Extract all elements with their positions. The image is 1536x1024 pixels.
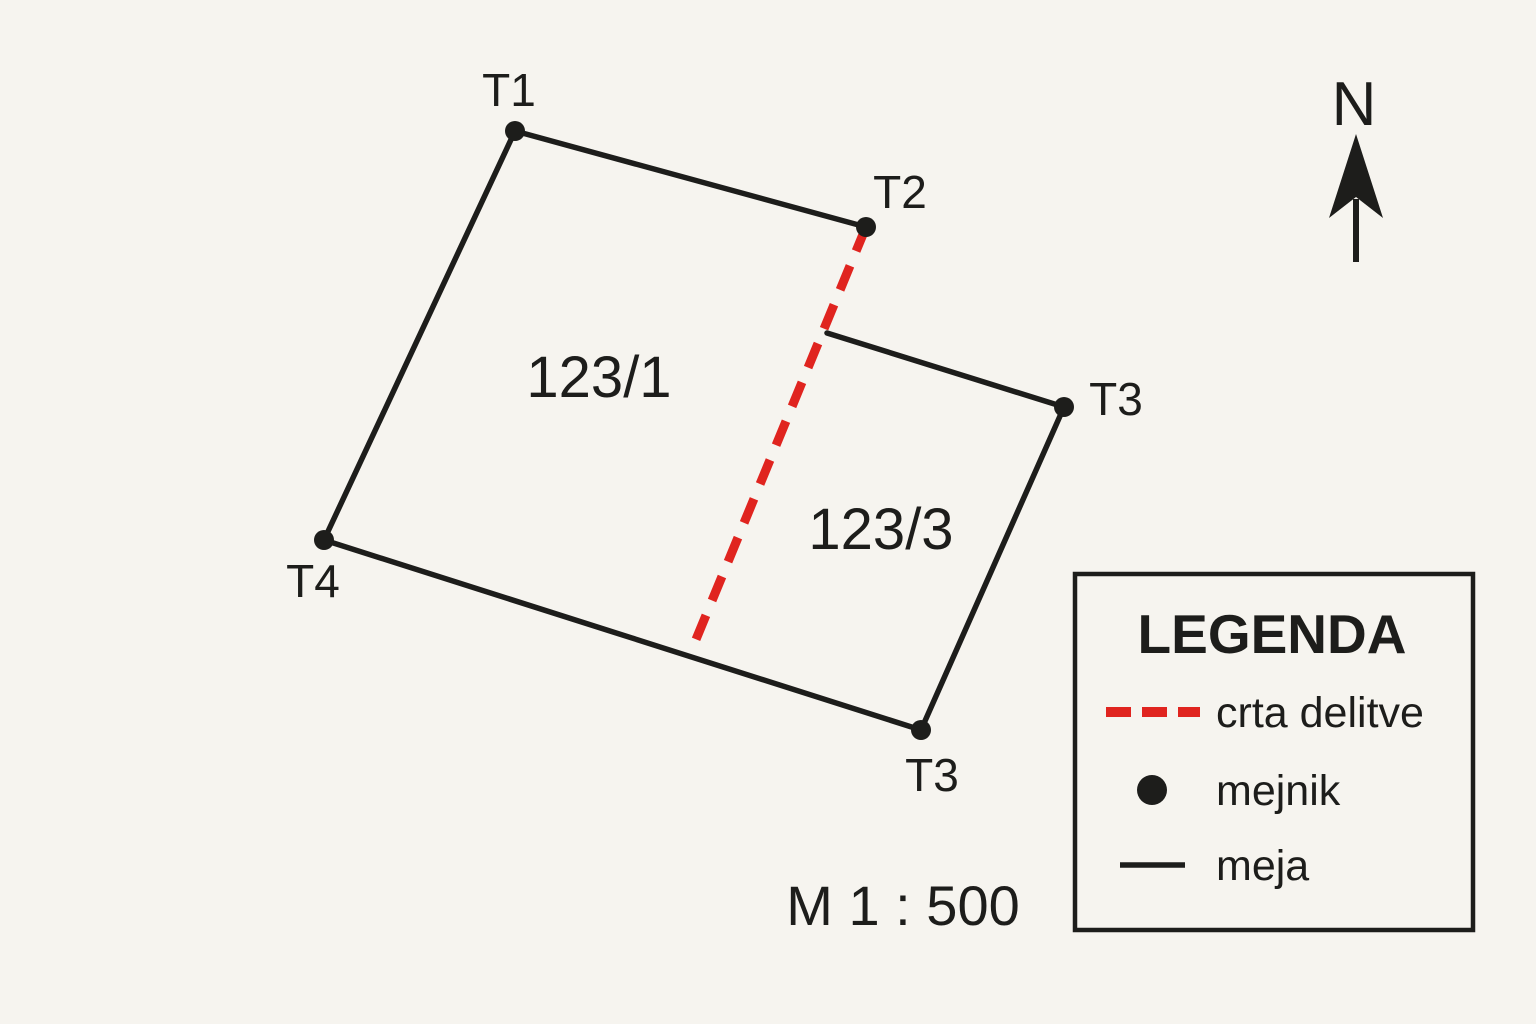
parcel-label-123-1: 123/1 [526, 345, 671, 410]
sketch-canvas: T1 T2 T3 T3 T4 123/1 123/3 N M 1 : 500 L… [0, 0, 1536, 1024]
parcel-division-sketch: T1 T2 T3 T3 T4 123/1 123/3 N M 1 : 500 L… [0, 0, 1536, 1024]
point-label-t1: T1 [482, 64, 536, 116]
parcel-boundaries [324, 131, 1064, 730]
legend-item-meja: meja [1216, 842, 1309, 890]
marker-dot-t1 [505, 121, 525, 141]
point-label-t3-right: T3 [1089, 373, 1143, 425]
legend-dot-icon [1137, 775, 1167, 805]
point-labels: T1 T2 T3 T3 T4 [286, 64, 1143, 801]
point-label-t3-bottom: T3 [905, 749, 959, 801]
boundary-t1-t2 [515, 131, 866, 227]
boundary-t4-t3b [324, 540, 921, 730]
marker-dot-t4 [314, 530, 334, 550]
scale-label: M 1 : 500 [786, 874, 1019, 937]
north-arrow: N [1329, 70, 1383, 262]
legend-title: LEGENDA [1138, 603, 1407, 665]
marker-dot-t3-right [1054, 397, 1074, 417]
point-label-t2: T2 [873, 166, 927, 218]
boundary-t1-t4 [324, 131, 515, 540]
division-line [690, 227, 866, 654]
legend: LEGENDA crta delitve mejnik meja [1075, 574, 1473, 930]
parcel-labels: 123/1 123/3 [526, 345, 953, 562]
legend-item-mejnik: mejnik [1216, 767, 1341, 815]
legend-item-crta-delitve: crta delitve [1216, 689, 1424, 737]
parcel-label-123-3: 123/3 [808, 497, 953, 562]
point-label-t4: T4 [286, 555, 340, 607]
north-label: N [1332, 70, 1377, 139]
marker-dot-t3-bottom [911, 720, 931, 740]
marker-dot-t2 [856, 217, 876, 237]
boundary-junction-t3r [827, 333, 1064, 407]
boundary-t3b-t3r [921, 407, 1064, 730]
